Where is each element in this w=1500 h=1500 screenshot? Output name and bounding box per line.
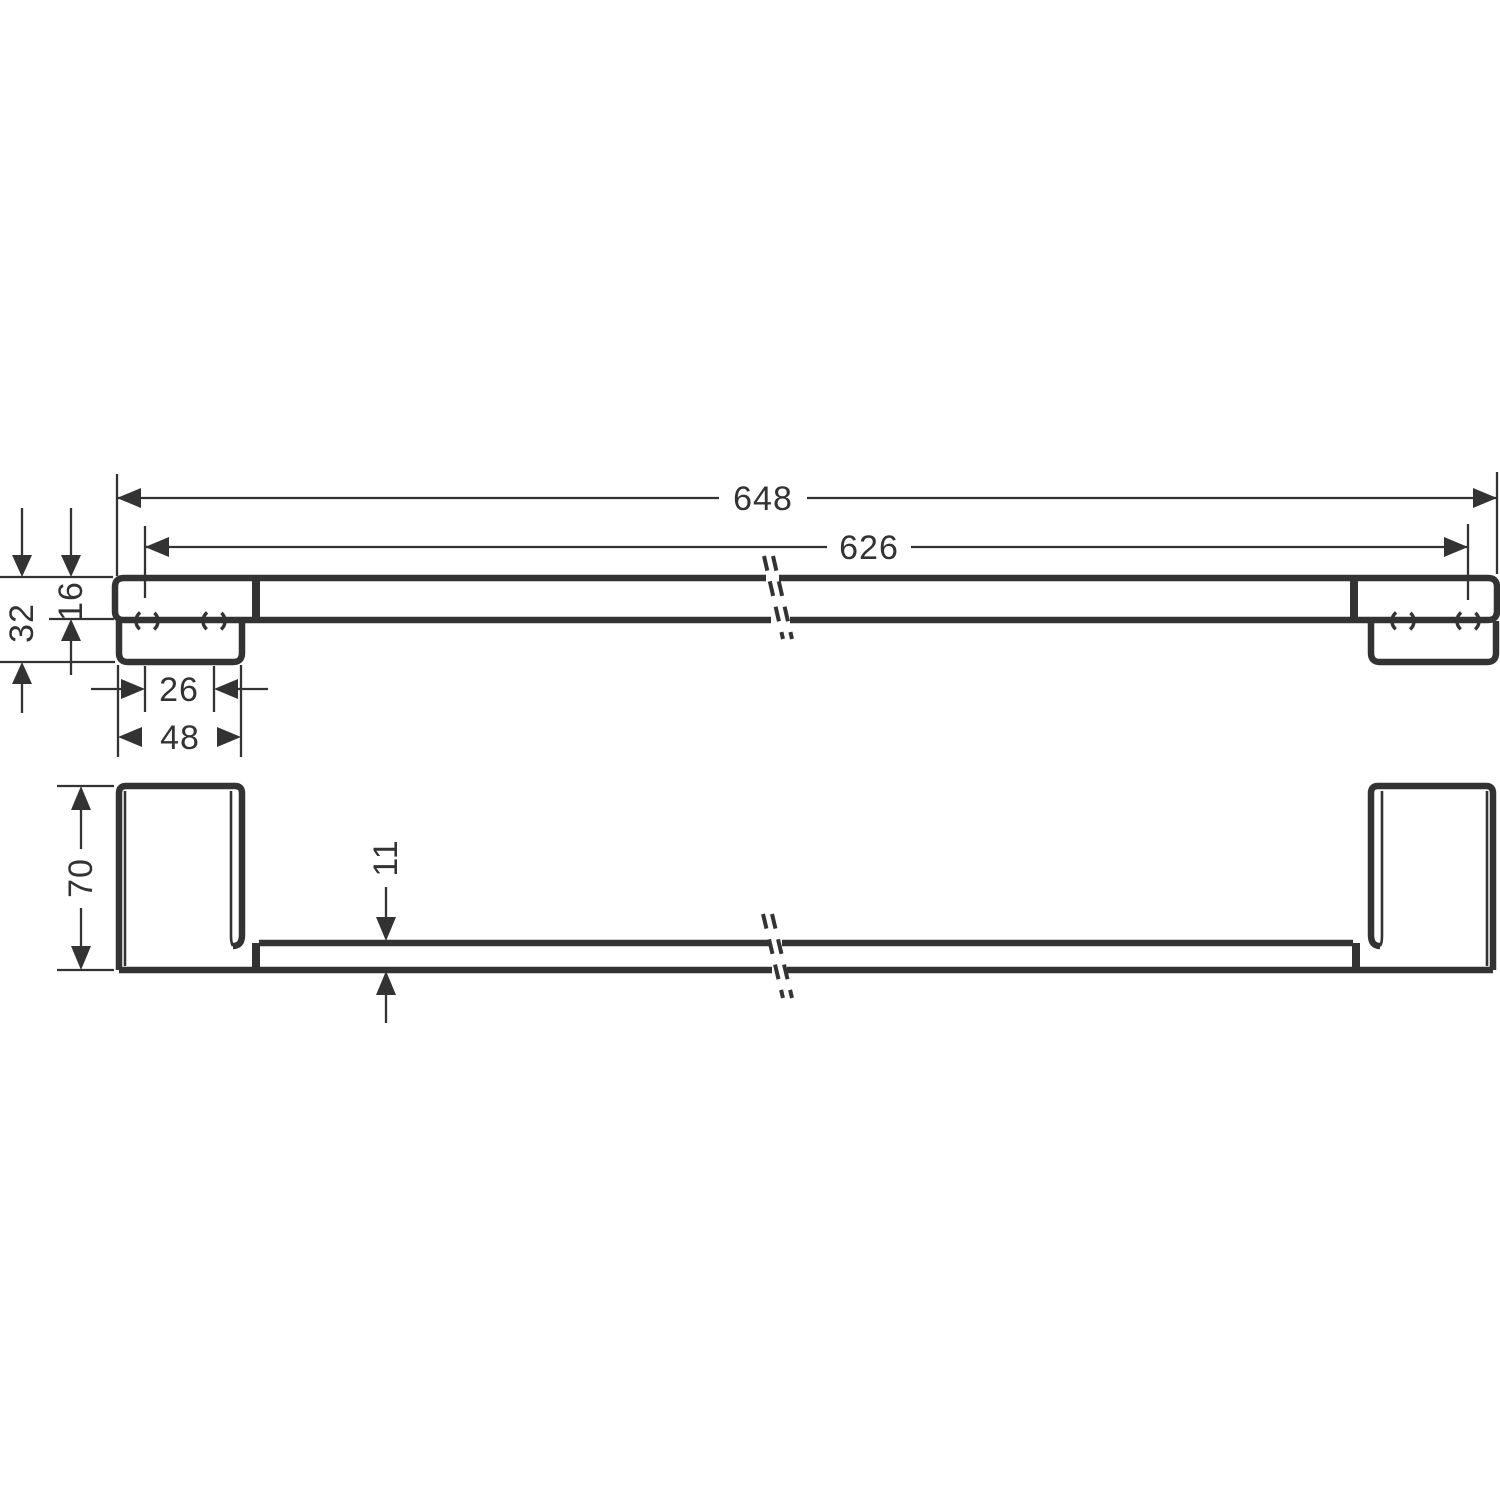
arrowhead-up xyxy=(71,786,91,810)
left-holder-outline xyxy=(115,578,766,620)
drawing-canvas: 648 626 32 16 xyxy=(0,0,1500,1500)
arrowhead-up xyxy=(61,619,81,641)
arrowhead-right xyxy=(1444,537,1468,557)
arrowhead-left xyxy=(145,537,169,557)
dim-bar-thickness-label: 11 xyxy=(367,839,405,876)
dim-plate-length-label: 48 xyxy=(160,719,200,757)
arrowhead-down xyxy=(71,946,91,970)
arrowhead-right xyxy=(1473,488,1497,508)
bar-front-outline xyxy=(119,943,1493,970)
dim-bracket-depth: 70 xyxy=(57,786,114,970)
dim-bar-profile-height: 16 xyxy=(49,508,114,675)
arrowhead-left xyxy=(118,727,142,747)
right-bracket-outer xyxy=(1371,786,1493,970)
right-bracket-inner-edge xyxy=(1380,791,1382,946)
arrowhead-up xyxy=(376,971,396,995)
arrowhead-left xyxy=(214,679,238,699)
arrowhead-left xyxy=(117,488,141,508)
right-holder-outline xyxy=(779,578,1497,620)
left-bracket-inner-edge xyxy=(231,791,233,946)
top-view: 648 626 32 16 xyxy=(0,472,1497,757)
dim-hole-spacing-label: 26 xyxy=(159,671,199,709)
break-mark-top-view xyxy=(764,556,792,639)
dim-bracket-depth-label: 70 xyxy=(62,858,100,898)
dim-bar-profile-height-label: 16 xyxy=(52,581,90,621)
left-bracket-outer xyxy=(119,786,242,970)
break-mark-front-view xyxy=(763,914,792,998)
dim-bar-thickness: 11 xyxy=(367,839,405,1023)
arrowhead-right xyxy=(121,679,145,699)
arrowhead-right xyxy=(217,727,241,747)
dim-hole-span: 626 xyxy=(145,524,1468,600)
arrowhead-down xyxy=(61,555,81,577)
dim-hole-span-label: 626 xyxy=(839,529,899,567)
break-line xyxy=(772,914,792,998)
dim-end-height-label: 32 xyxy=(3,603,41,643)
break-line xyxy=(764,556,783,639)
bar-and-holders-outline xyxy=(115,578,1497,662)
dim-overall-length: 648 xyxy=(117,472,1497,576)
front-view: 70 11 xyxy=(57,786,1493,1023)
arrowhead-up xyxy=(12,662,32,684)
left-bracket-outline xyxy=(119,786,256,970)
break-line xyxy=(773,556,792,639)
arrowhead-down xyxy=(12,555,32,577)
right-bracket-outline xyxy=(1356,786,1493,970)
arrowhead-down xyxy=(376,917,396,941)
dim-overall-length-label: 648 xyxy=(733,480,793,518)
towel-bar-technical-drawing: 648 626 32 16 xyxy=(0,0,1500,1500)
